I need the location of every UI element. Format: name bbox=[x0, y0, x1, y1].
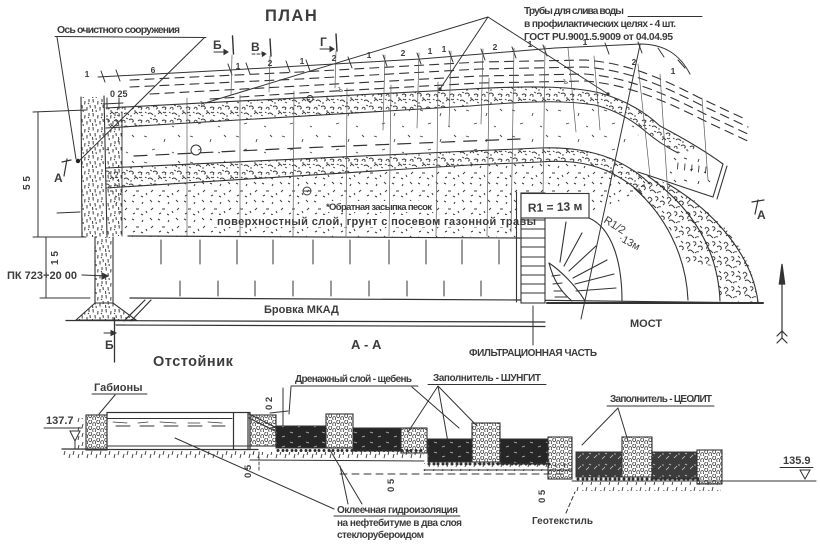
svg-text:В: В bbox=[251, 40, 260, 54]
svg-text:ъ: ъ bbox=[563, 77, 568, 86]
svg-text:ФИЛЬТРАЦИОННАЯ ЧАСТЬ: ФИЛЬТРАЦИОННАЯ ЧАСТЬ bbox=[469, 348, 597, 359]
svg-text:А - А: А - А bbox=[351, 337, 382, 352]
svg-text:1: 1 bbox=[671, 66, 676, 76]
svg-text:135.9: 135.9 bbox=[783, 455, 811, 467]
svg-text:в профилактических целях - 4: в профилактических целях - 4 шт. bbox=[524, 18, 676, 30]
svg-text:2: 2 bbox=[493, 42, 498, 52]
svg-text:0 2: 0 2 bbox=[264, 397, 275, 410]
svg-text:ПЛАН: ПЛАН bbox=[265, 7, 318, 25]
svg-text:А: А bbox=[54, 171, 63, 185]
svg-text:А: А bbox=[757, 208, 766, 222]
svg-text:Габионы: Габионы bbox=[94, 382, 143, 394]
svg-text:2: 2 bbox=[632, 57, 637, 67]
svg-text:Отстойник: Отстойник bbox=[153, 354, 234, 370]
svg-text:6: 6 bbox=[151, 65, 156, 75]
svg-text:1: 1 bbox=[236, 61, 241, 71]
svg-text:поверхностный слой, грунт с по: поверхностный слой, грунт с посевом газо… bbox=[217, 216, 536, 228]
svg-text:1 5: 1 5 bbox=[50, 251, 61, 265]
svg-text:ГОСТ РU.9001.5.9009 от 04.04.9: ГОСТ РU.9001.5.9009 от 04.04.95 bbox=[524, 32, 673, 43]
svg-text:1: 1 bbox=[367, 50, 372, 60]
svg-text:0 5: 0 5 bbox=[537, 489, 548, 503]
svg-text:2: 2 bbox=[401, 48, 406, 58]
svg-text:5 5: 5 5 bbox=[22, 176, 33, 190]
svg-text:ПК 723+20 00: ПК 723+20 00 bbox=[7, 270, 77, 282]
svg-text:137.7: 137.7 bbox=[46, 415, 74, 427]
svg-text:0 25: 0 25 bbox=[110, 89, 128, 99]
svg-text:1: 1 bbox=[300, 56, 305, 66]
svg-text:Заполнитель - ШУНГИТ: Заполнитель - ШУНГИТ bbox=[433, 373, 541, 384]
svg-text:ъ: ъ bbox=[338, 85, 343, 94]
svg-text:Бровка МКАД: Бровка МКАД bbox=[264, 304, 339, 316]
svg-text:*Обратная засыпка песок: *Обратная засыпка песок bbox=[326, 202, 432, 213]
svg-text:на нефтебитуме в два слоя: на нефтебитуме в два слоя bbox=[337, 517, 462, 529]
svg-text:1: 1 bbox=[583, 37, 588, 47]
svg-text:R1 = 13 м: R1 = 13 м bbox=[528, 199, 583, 215]
svg-text:Дренажный слой - щебень: Дренажный слой - щебень bbox=[295, 373, 412, 385]
svg-text:1: 1 bbox=[528, 39, 533, 49]
svg-text:Трубы для слива воды: Трубы для слива воды bbox=[524, 5, 624, 17]
svg-text:Заполнитель - ЦЕОЛИТ: Заполнитель - ЦЕОЛИТ bbox=[610, 394, 712, 405]
svg-text:1: 1 bbox=[442, 44, 447, 54]
svg-text:стеклорубероидом: стеклорубероидом bbox=[337, 529, 424, 541]
svg-text:·13м: ·13м bbox=[617, 232, 642, 253]
svg-text:Геотекстиль: Геотекстиль bbox=[532, 516, 593, 527]
svg-text:1: 1 bbox=[428, 46, 433, 56]
svg-text:Оклеечная гидроизоляция: Оклеечная гидроизоляция bbox=[337, 505, 458, 516]
svg-text:0 5: 0 5 bbox=[386, 478, 397, 492]
svg-text:Б: Б bbox=[213, 38, 222, 52]
svg-text:Г: Г bbox=[320, 35, 327, 49]
svg-text:МОСТ: МОСТ bbox=[630, 318, 662, 330]
svg-text:Ось очистного сооружения: Ось очистного сооружения bbox=[57, 24, 180, 36]
svg-text:Б: Б bbox=[105, 338, 114, 352]
svg-text:1: 1 bbox=[85, 69, 90, 79]
